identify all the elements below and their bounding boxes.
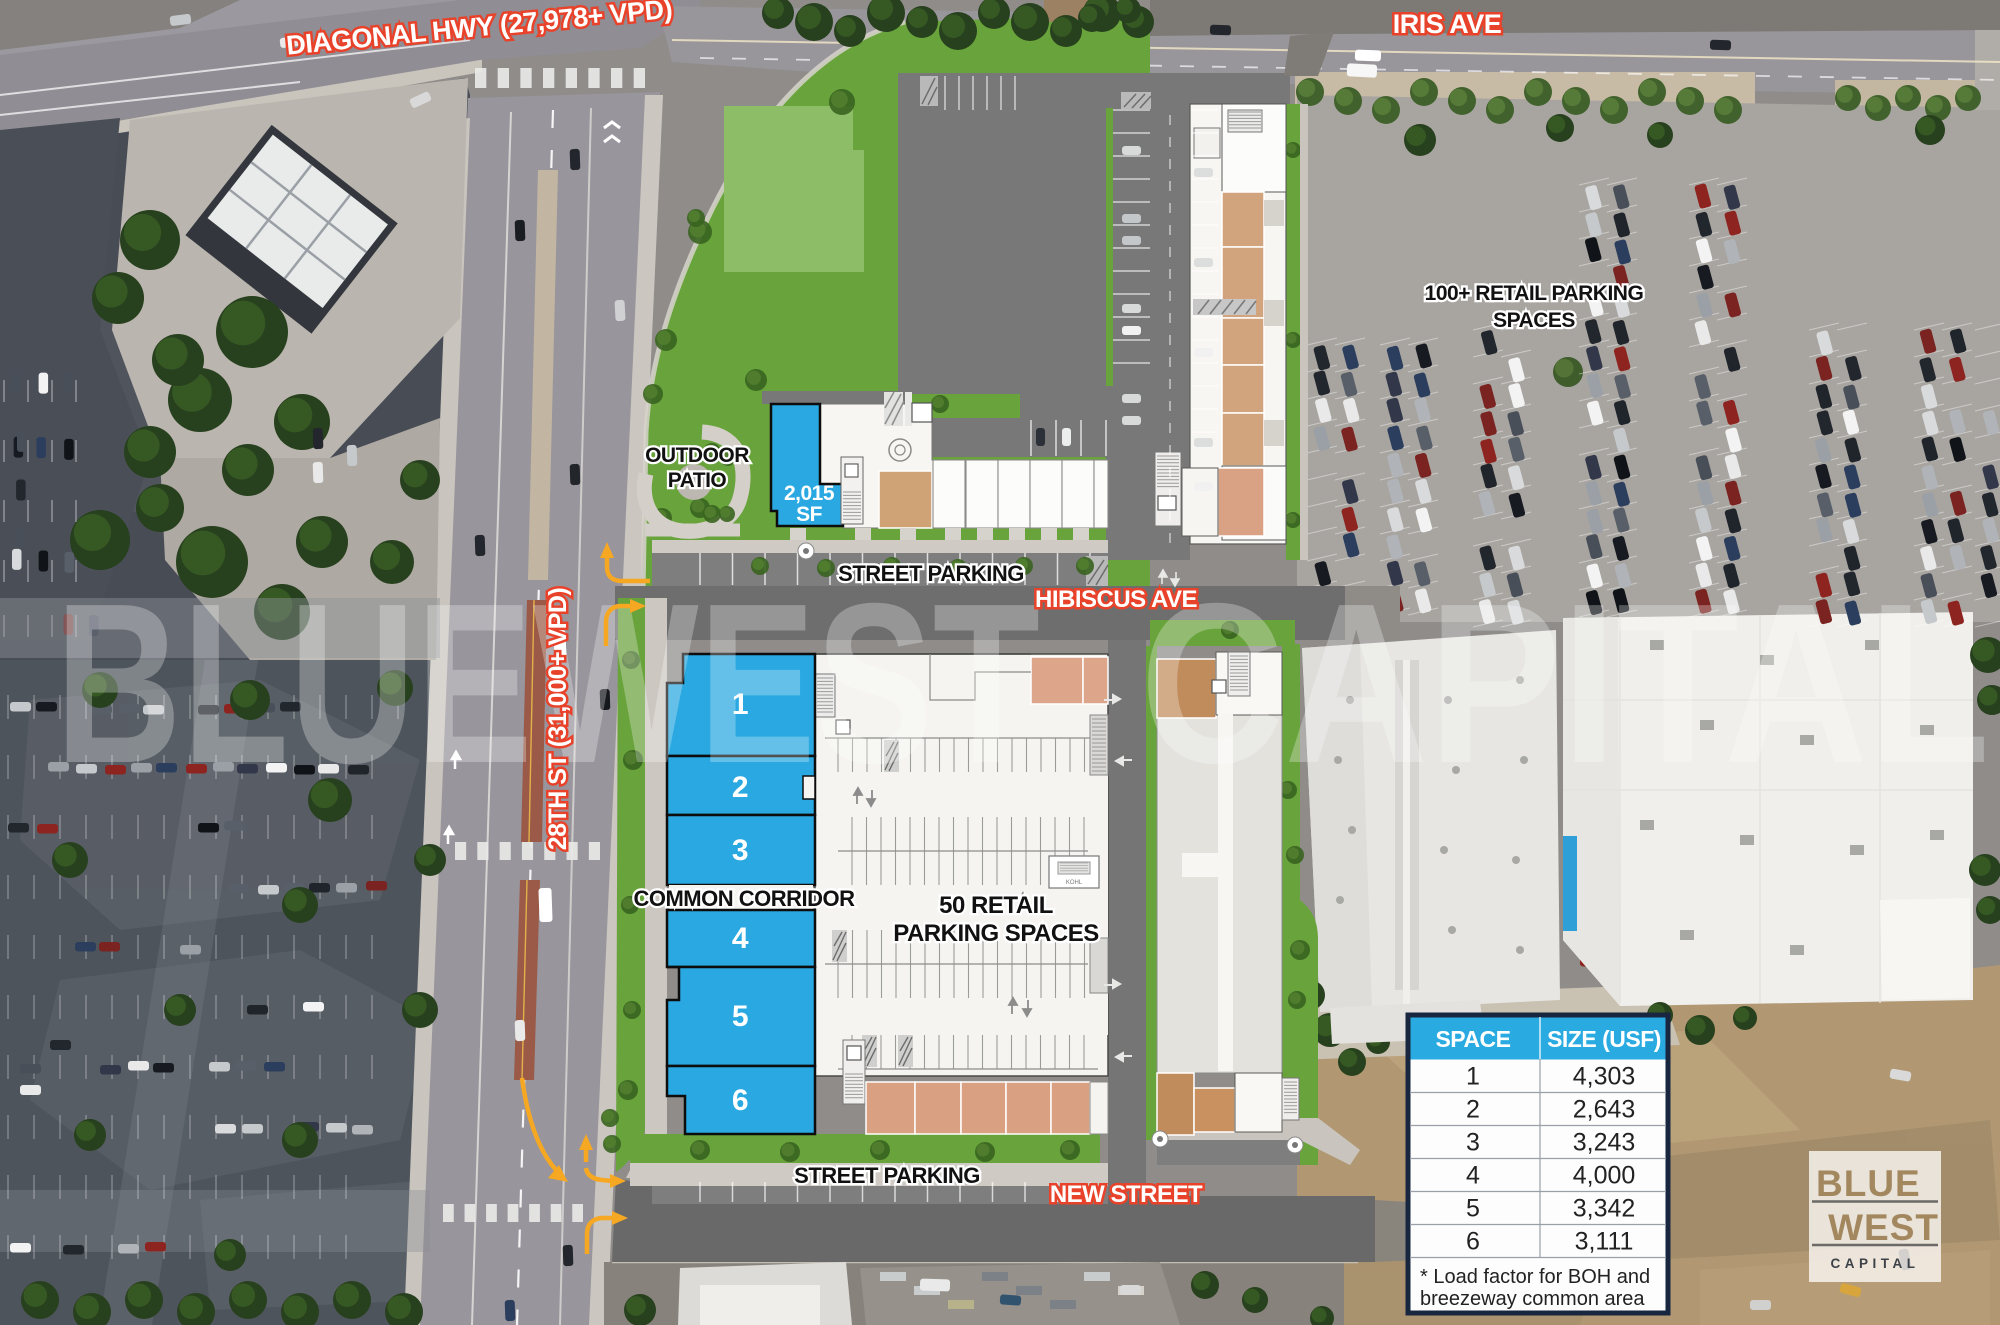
svg-text:3: 3 — [732, 834, 748, 867]
svg-text:6: 6 — [732, 1084, 748, 1117]
svg-text:6: 6 — [1466, 1228, 1480, 1256]
svg-text:COMMON CORRIDOR: COMMON CORRIDOR — [633, 886, 855, 911]
svg-text:4: 4 — [1466, 1162, 1480, 1190]
svg-text:IRIS AVE: IRIS AVE — [1393, 9, 1502, 39]
svg-text:28TH ST (31,000+ VPD): 28TH ST (31,000+ VPD) — [544, 588, 572, 851]
svg-text:NEW STREET: NEW STREET — [1050, 1181, 1203, 1208]
svg-text:SPACES: SPACES — [1493, 309, 1575, 332]
svg-text:SIZE (USF): SIZE (USF) — [1547, 1026, 1661, 1052]
svg-text:SPACE: SPACE — [1435, 1026, 1510, 1052]
svg-text:HIBISCUS AVE: HIBISCUS AVE — [1035, 586, 1198, 613]
svg-text:3,342: 3,342 — [1573, 1195, 1636, 1223]
svg-text:4,000: 4,000 — [1573, 1162, 1636, 1190]
svg-text:KOHL: KOHL — [1066, 880, 1083, 886]
svg-text:* Load factor for BOH and: * Load factor for BOH and — [1420, 1266, 1650, 1288]
svg-text:OUTDOOR: OUTDOOR — [645, 444, 749, 467]
svg-text:WEST: WEST — [1828, 1207, 1939, 1248]
svg-text:4,303: 4,303 — [1573, 1063, 1636, 1091]
svg-text:4: 4 — [732, 922, 749, 955]
svg-text:STREET PARKING: STREET PARKING — [838, 561, 1024, 586]
svg-text:STREET PARKING: STREET PARKING — [794, 1163, 980, 1188]
svg-text:5: 5 — [732, 1000, 748, 1033]
svg-text:PARKING SPACES: PARKING SPACES — [893, 920, 1099, 947]
svg-text:3: 3 — [1466, 1129, 1480, 1157]
svg-text:BLUE: BLUE — [1816, 1163, 1921, 1204]
svg-text:1: 1 — [1466, 1063, 1480, 1091]
svg-text:5: 5 — [1466, 1195, 1480, 1223]
svg-text:2,643: 2,643 — [1573, 1096, 1636, 1124]
svg-text:CAPITAL: CAPITAL — [1831, 1256, 1920, 1271]
svg-text:3,243: 3,243 — [1573, 1129, 1636, 1157]
svg-text:2: 2 — [1466, 1096, 1480, 1124]
svg-text:SF: SF — [796, 503, 823, 526]
svg-text:breezeway common area: breezeway common area — [1420, 1288, 1645, 1310]
svg-text:3,111: 3,111 — [1575, 1228, 1634, 1256]
svg-text:50 RETAIL: 50 RETAIL — [939, 892, 1053, 919]
svg-text:CAPITAL: CAPITAL — [1140, 557, 1990, 811]
svg-text:PATIO: PATIO — [668, 469, 727, 492]
svg-text:2,015: 2,015 — [784, 482, 835, 505]
svg-text:100+ RETAIL PARKING: 100+ RETAIL PARKING — [1425, 282, 1644, 305]
